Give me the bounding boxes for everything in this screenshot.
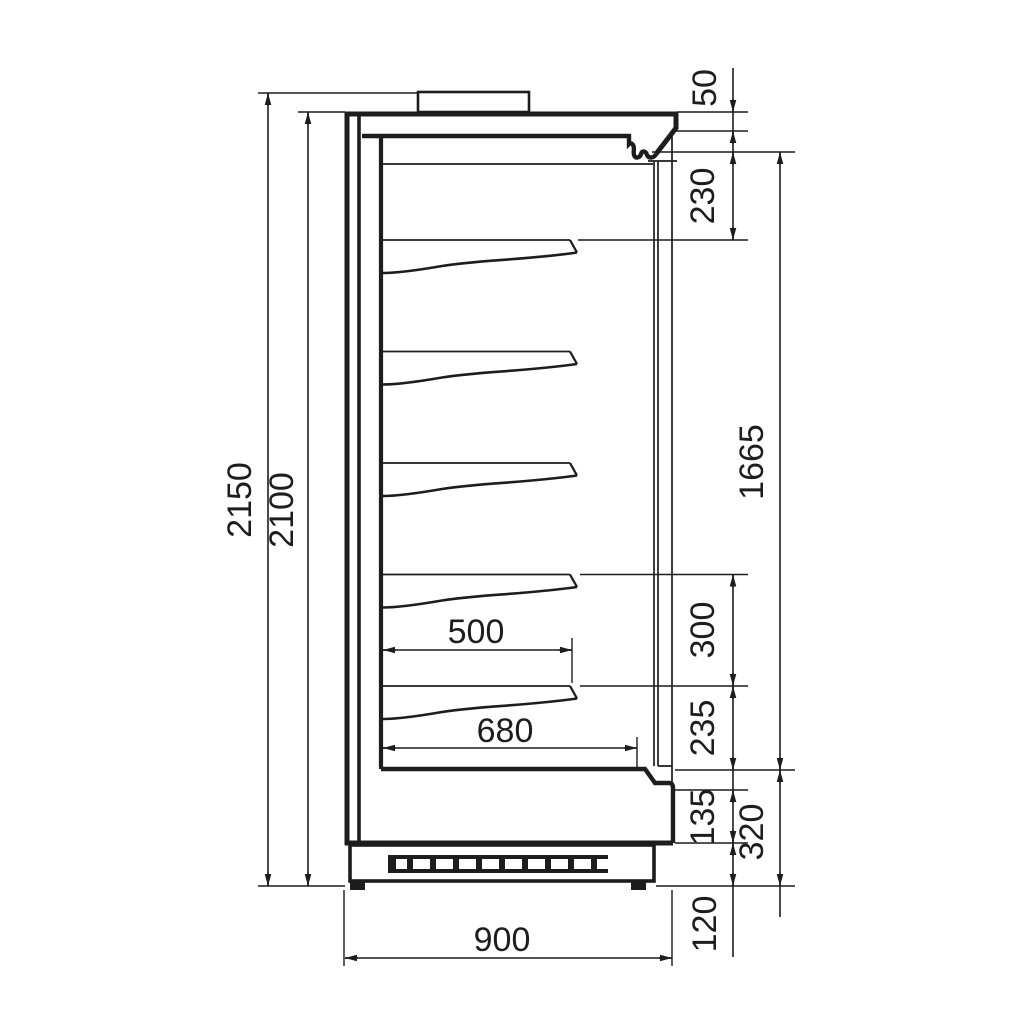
left-foot [350, 881, 365, 890]
technical-drawing-page: 2150 2100 50 230 1665 300 235 135 320 12… [0, 0, 1024, 1024]
base-plinth [350, 845, 654, 890]
dim-label-last-shelf-to-deck: 235 [684, 700, 722, 757]
bottom-deck-and-step [381, 769, 673, 843]
dim-label-canopy-band: 50 [686, 69, 724, 107]
dim-label-base-height: 320 [733, 804, 771, 861]
front-panel-lines [648, 136, 677, 782]
dim-label-shelf-depth: 500 [448, 613, 505, 651]
dim-label-canopy-to-first-shelf: 230 [684, 168, 722, 225]
dim-label-deck-depth: 680 [477, 712, 534, 750]
dim-label-display-opening-height: 1665 [733, 424, 771, 500]
dim-label-cabinet-height: 2100 [263, 472, 301, 548]
dim-label-overall-depth: 900 [474, 921, 531, 959]
canopy-air-outlet [362, 136, 656, 158]
shelf-1 [383, 240, 577, 273]
dim-label-front-lower-band: 135 [684, 789, 722, 846]
dim-label-overall-height: 2150 [221, 462, 259, 538]
shelf-4 [383, 575, 577, 608]
top-spacer-box [418, 92, 529, 112]
right-foot [631, 881, 646, 890]
shelf-2 [383, 352, 577, 385]
cabinet-section-drawing: 2150 2100 50 230 1665 300 235 135 320 12… [0, 0, 1024, 1024]
dim-label-plinth-height: 120 [686, 896, 724, 953]
dimension-labels: 2150 2100 50 230 1665 300 235 135 320 12… [221, 69, 771, 959]
dim-label-shelf-spacing: 300 [684, 602, 722, 659]
shelf-3 [383, 463, 577, 496]
ventilation-grille [388, 855, 608, 873]
